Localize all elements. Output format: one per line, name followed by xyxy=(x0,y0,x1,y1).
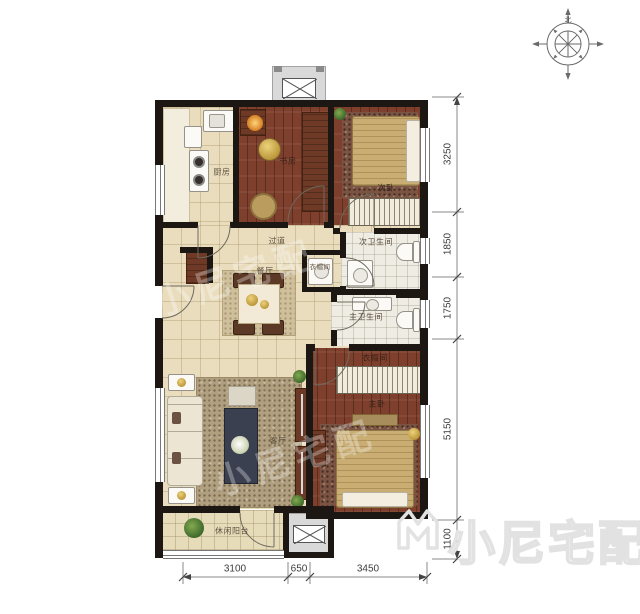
wall-bedroom2-bottom-b xyxy=(374,228,421,234)
room-label-living: 客厅 xyxy=(270,436,287,447)
dim-bottom-3100: 3100 xyxy=(224,564,246,575)
window-bedroom2 xyxy=(420,128,430,182)
sink-basin xyxy=(209,114,225,128)
room-label-master: 主卧 xyxy=(369,399,386,410)
study-chair xyxy=(258,138,281,161)
window-balcony xyxy=(163,550,284,559)
wall-balcony-divider-a xyxy=(155,506,240,513)
dim-right-5150: 5150 xyxy=(443,418,454,440)
x-cross-icon xyxy=(283,79,317,99)
elevator-symbol-top xyxy=(282,78,316,98)
window-masterbath xyxy=(420,300,430,328)
elevator-cap xyxy=(274,66,282,72)
wall-kitchen-bottom-b xyxy=(230,222,238,228)
wall-kitchen-bottom-a xyxy=(162,222,198,228)
wall-master-top-b xyxy=(349,344,421,351)
room-label-hallway: 过道 xyxy=(269,236,286,247)
room-label-kitchen: 厨房 xyxy=(214,167,231,178)
side-table-bottom-decor xyxy=(177,491,186,500)
room-label-masterbath: 主卫生间 xyxy=(349,312,383,323)
dim-right-3250: 3250 xyxy=(443,143,454,165)
elevator-symbol-bottom xyxy=(293,525,325,543)
study-desk xyxy=(302,112,330,212)
window-bath2 xyxy=(420,238,430,264)
room-label-bedroom2: 次卧 xyxy=(378,183,395,194)
elevator-cap xyxy=(316,66,324,72)
stove-burner xyxy=(193,174,205,186)
sofa-pillow xyxy=(172,452,181,464)
side-table-top-decor xyxy=(177,378,186,387)
kitchen-flue xyxy=(184,126,202,148)
sofa xyxy=(167,396,203,486)
watermark-logo-icon xyxy=(392,504,444,556)
sofa-pillow xyxy=(172,412,181,424)
dim-bottom-3450: 3450 xyxy=(357,564,379,575)
wall-top xyxy=(157,100,428,107)
living-ottoman xyxy=(228,386,256,406)
master-wardrobe xyxy=(336,366,421,394)
bath2-toilet-tank xyxy=(413,241,420,263)
dim-bottom-650: 650 xyxy=(291,564,308,575)
wall-kitchen-study xyxy=(233,107,239,222)
wall-master-top-a xyxy=(306,344,315,351)
wall-masterbath-pier xyxy=(396,289,421,298)
compass-north-label: 北 xyxy=(565,15,572,25)
stove-burner xyxy=(193,156,205,168)
room-label-balcony: 休闲阳台 xyxy=(215,526,249,537)
wall-masterbath-left-a xyxy=(331,295,337,302)
room-label-wardrobe: 衣帽间 xyxy=(362,353,388,364)
bedroom2-pillows xyxy=(406,120,420,182)
window-kitchen xyxy=(155,165,165,215)
master-gold-stool xyxy=(408,428,420,440)
study-lamp xyxy=(247,115,263,131)
bath2-toilet xyxy=(396,243,413,261)
study-round-rug xyxy=(250,193,277,220)
window-master xyxy=(420,405,430,478)
wall-bedroom2-bottom-a xyxy=(333,228,340,234)
living-plant-top xyxy=(293,370,306,383)
watermark-brand-text: 小尼宅配 xyxy=(448,505,640,574)
floorplan-canvas: 厨房 书房 次卧 次卫生间 过道 衣帽间 餐厅 主卫生间 衣帽间 主卧 客厅 休… xyxy=(0,0,640,614)
room-label-study: 书房 xyxy=(280,156,297,167)
bedroom2-plant xyxy=(334,108,346,120)
balcony-plant xyxy=(184,518,204,538)
wall-elev-bottom-base xyxy=(283,552,334,558)
bedroom2-wardrobe xyxy=(348,198,421,226)
dining-dish xyxy=(260,300,269,309)
wall-balcony-divider-b xyxy=(274,506,307,513)
wall-study-bottom-a xyxy=(238,222,288,228)
wall-masterbath-left-b xyxy=(331,330,337,346)
dim-right-1850: 1850 xyxy=(443,233,454,255)
bath2-basin xyxy=(353,268,368,283)
x-cross-icon xyxy=(294,526,326,544)
room-label-closet: 衣帽间 xyxy=(310,261,331,271)
wall-study-bedroom2 xyxy=(328,107,334,228)
masterbath-toilet xyxy=(396,311,413,329)
window-living xyxy=(155,388,165,482)
room-label-dining: 餐厅 xyxy=(257,266,274,277)
room-label-bath2: 次卫生间 xyxy=(359,237,393,248)
wall-elev-bottom-right xyxy=(328,509,334,558)
masterbath-toilet-tank xyxy=(413,308,420,332)
wall-bath2-left-a xyxy=(340,232,346,258)
dim-right-1750: 1750 xyxy=(443,297,454,319)
masterbath-basin xyxy=(366,299,379,311)
